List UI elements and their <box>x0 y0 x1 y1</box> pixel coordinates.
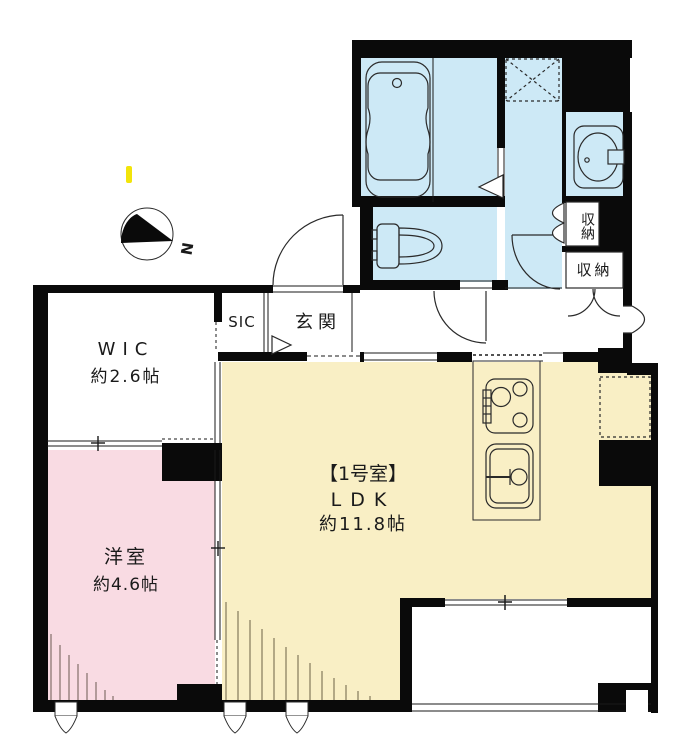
ldk-floor-lower <box>222 600 402 703</box>
entrance-door <box>623 306 645 333</box>
wic-room-label: WIC 約2.6帖 <box>38 336 214 390</box>
compass <box>121 208 173 260</box>
storage2-doors <box>568 289 620 316</box>
genkan-step-arrow <box>272 336 291 354</box>
bedroom-label: 洋室 約4.6帖 <box>34 543 218 599</box>
storage1-label: 収納 <box>567 204 597 248</box>
highlight-mark <box>126 166 132 183</box>
corridor-floor <box>505 58 562 289</box>
north-label: N <box>173 237 199 261</box>
ldk-door <box>434 291 486 343</box>
ldk-name: LDK <box>262 487 464 513</box>
storage2-label: 収納 <box>565 259 624 282</box>
vent <box>55 702 77 733</box>
sic-label: SIC <box>219 311 265 334</box>
ldk-label: 【1号室】 LDK 約11.8帖 <box>262 461 464 538</box>
vent <box>286 702 308 733</box>
genkan-label: 玄関 <box>281 309 355 337</box>
wic-size: 約2.6帖 <box>38 364 214 390</box>
ldk-unit: 【1号室】 <box>262 461 464 487</box>
wic-name: WIC <box>38 336 214 364</box>
balcony-drain-notch <box>626 690 648 712</box>
vent <box>224 702 246 733</box>
toilet-floor <box>373 207 497 282</box>
bedroom-name: 洋室 <box>34 543 218 572</box>
ldk-size: 約11.8帖 <box>262 513 464 538</box>
floor-plan: WIC 約2.6帖 洋室 約4.6帖 【1号室】 LDK 約11.8帖 SIC … <box>0 0 693 736</box>
washroom-door <box>273 215 343 285</box>
bedroom-size: 約4.6帖 <box>34 572 218 598</box>
